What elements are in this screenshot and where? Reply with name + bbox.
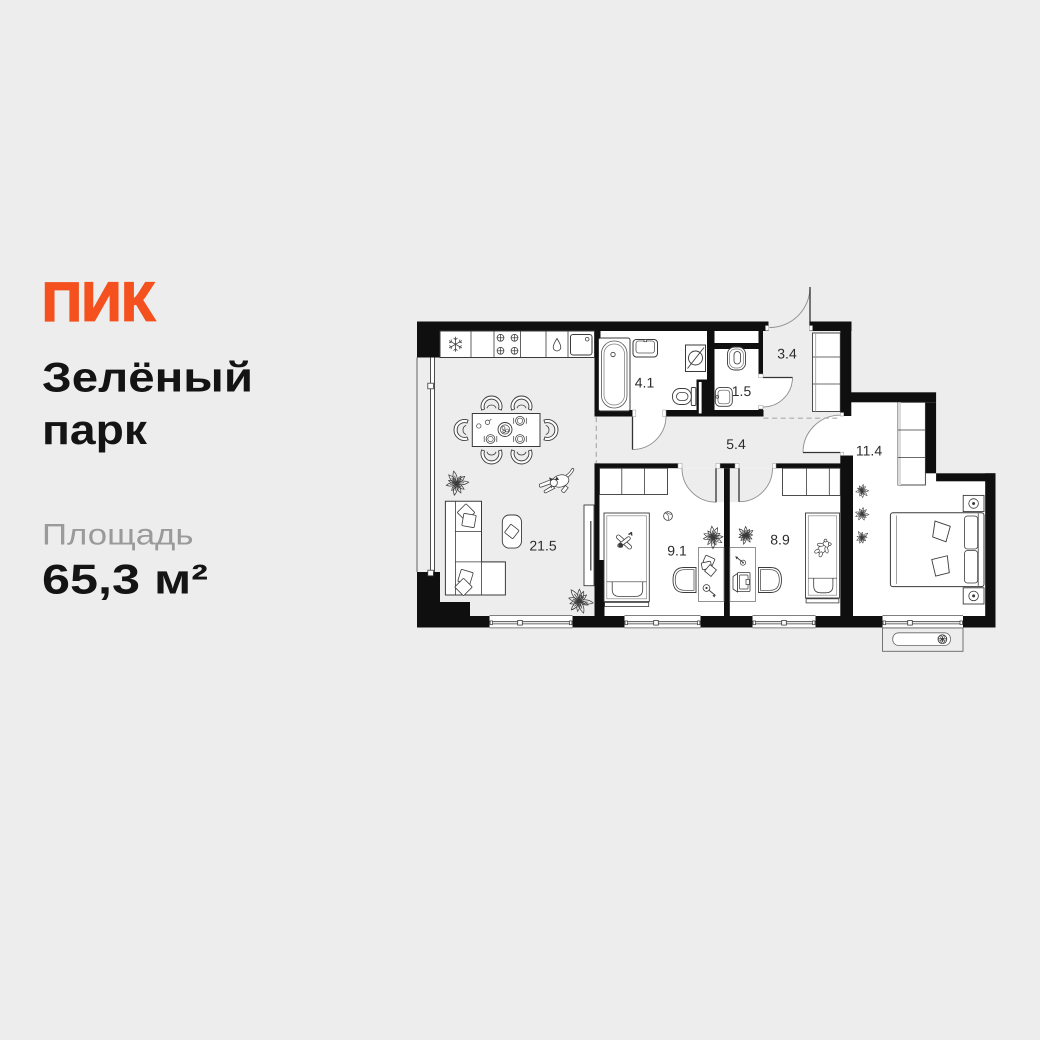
svg-text:4.1: 4.1 [635, 374, 655, 390]
svg-text:8.9: 8.9 [770, 531, 790, 547]
svg-text:Площадь: Площадь [42, 519, 194, 552]
svg-text:21.5: 21.5 [529, 537, 556, 553]
svg-text:1.5: 1.5 [732, 383, 752, 399]
svg-text:5.4: 5.4 [726, 436, 746, 452]
svg-text:3.4: 3.4 [777, 345, 797, 361]
svg-text:11.4: 11.4 [856, 442, 882, 458]
svg-text:парк: парк [42, 406, 148, 453]
svg-text:ПИК: ПИК [42, 271, 155, 333]
svg-text:Зелёный: Зелёный [42, 353, 253, 400]
svg-text:65,3 м²: 65,3 м² [42, 556, 208, 603]
svg-text:9.1: 9.1 [667, 542, 687, 558]
